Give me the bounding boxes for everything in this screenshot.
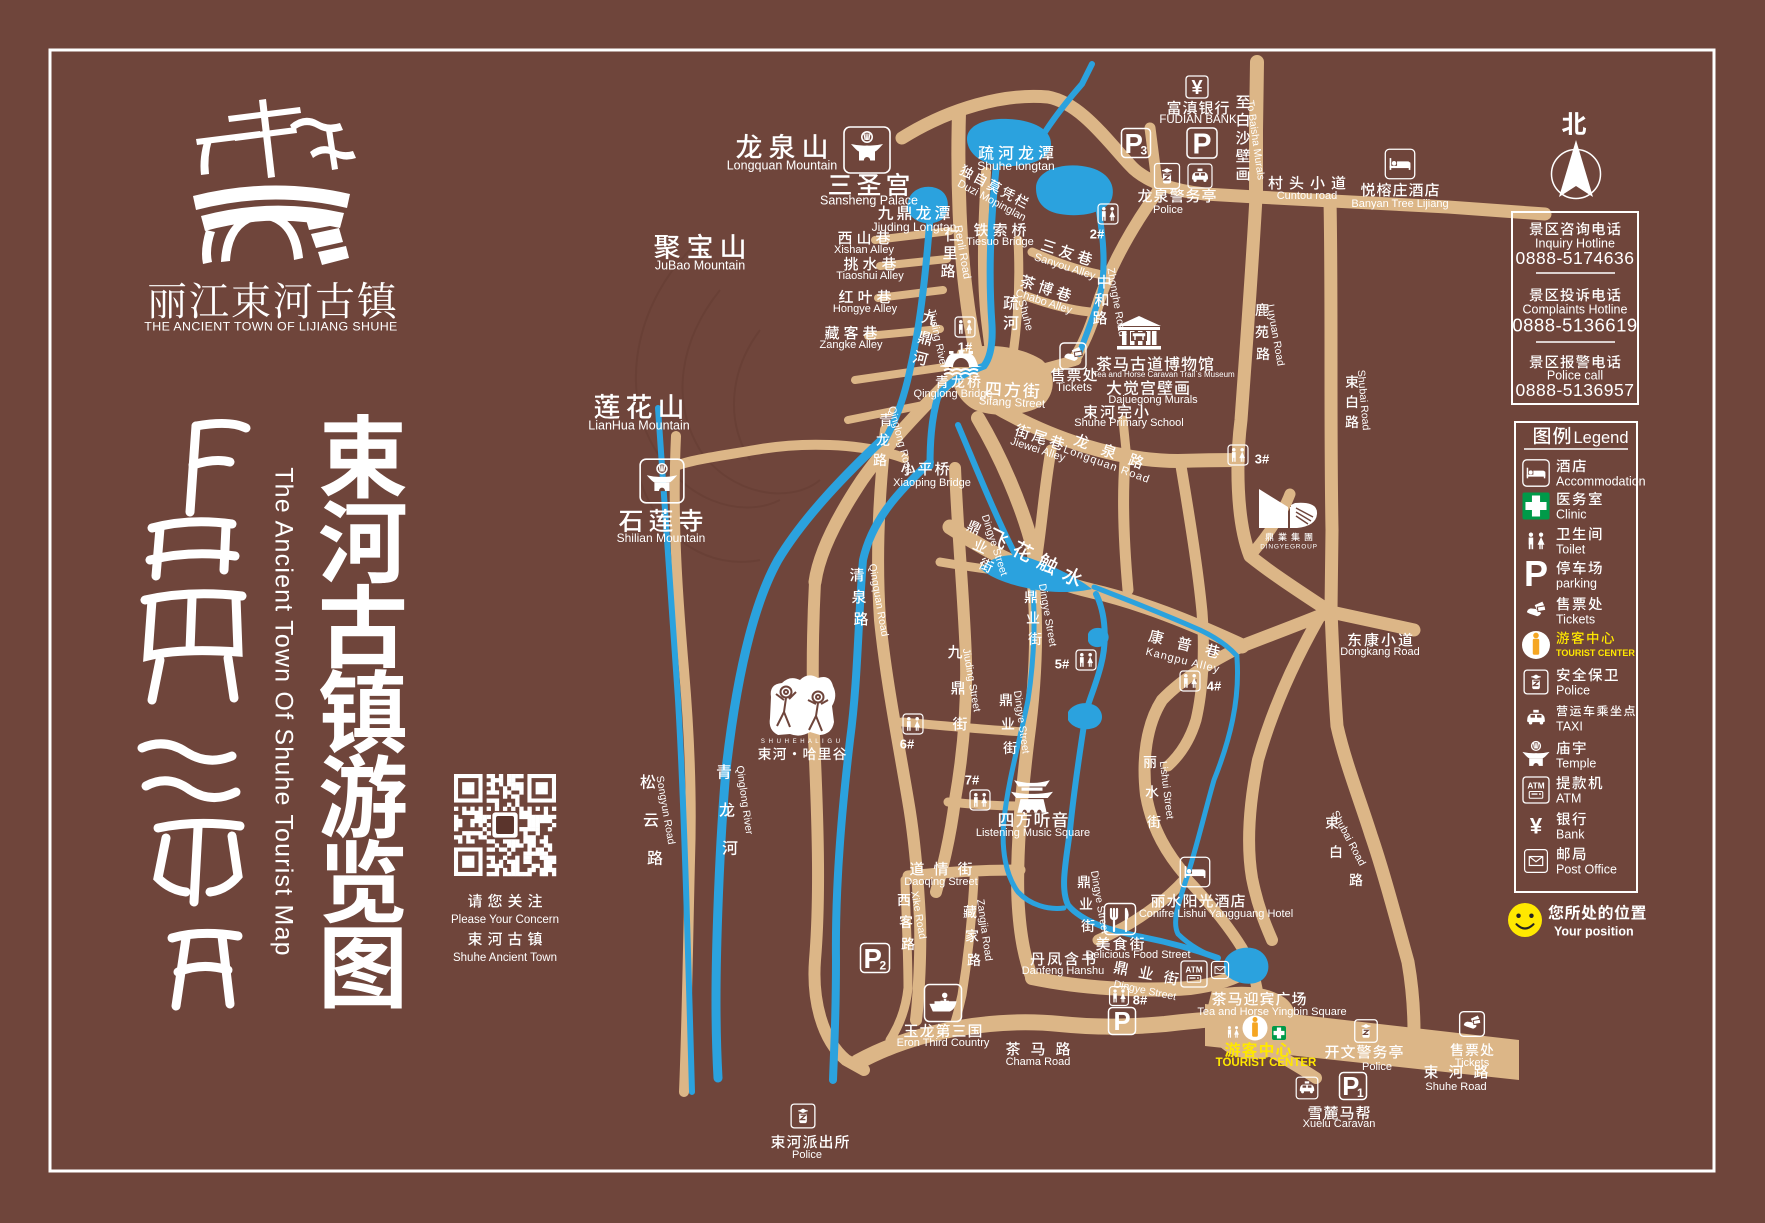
svg-text:7#: 7# — [965, 773, 980, 788]
svg-text:TAXI: TAXI — [1556, 719, 1583, 733]
svg-text:Please Your Concern: Please Your Concern — [451, 914, 559, 926]
svg-text:ATM: ATM — [1185, 966, 1202, 975]
svg-text:S H U H E H A L I G U: S H U H E H A L I G U — [761, 739, 841, 745]
svg-text:3#: 3# — [1255, 452, 1270, 467]
svg-text:Zangke Alley: Zangke Alley — [820, 339, 883, 351]
svg-text:Tickets: Tickets — [1556, 612, 1595, 626]
svg-text:6#: 6# — [900, 737, 915, 752]
svg-text:Listening Music Square: Listening Music Square — [976, 827, 1090, 839]
svg-text:1#: 1# — [958, 340, 973, 355]
svg-text:5#: 5# — [1055, 657, 1070, 672]
svg-text:Shilian Mountain: Shilian Mountain — [617, 531, 706, 545]
svg-text:Accommodation: Accommodation — [1556, 474, 1646, 488]
svg-text:Bank: Bank — [1556, 827, 1585, 841]
svg-text:Tea and Horse Caravan Trail`s: Tea and Horse Caravan Trail`s Museum — [1093, 370, 1235, 379]
svg-text:Shuhe longtan: Shuhe longtan — [977, 159, 1054, 173]
svg-text:Clinic: Clinic — [1556, 507, 1587, 521]
svg-text:Tea and Horse Yingbin Square: Tea and Horse Yingbin Square — [1197, 1006, 1346, 1018]
svg-text:P: P — [1524, 553, 1548, 594]
svg-text:Police: Police — [792, 1149, 822, 1161]
svg-text:Tiaoshui Alley: Tiaoshui Alley — [836, 270, 904, 282]
svg-text:Tiesuo Bridge: Tiesuo Bridge — [966, 236, 1033, 248]
svg-text:Shuhe Ancient Town: Shuhe Ancient Town — [453, 952, 557, 964]
svg-text:Daoqing Street: Daoqing Street — [904, 876, 977, 888]
svg-text:Cuntou road: Cuntou road — [1277, 190, 1338, 202]
svg-text:Shuhe Primary School: Shuhe Primary School — [1074, 417, 1183, 429]
svg-text:¥: ¥ — [1530, 814, 1543, 839]
svg-text:ATM: ATM — [1527, 782, 1544, 791]
svg-text:JuBao Mountain: JuBao Mountain — [655, 258, 745, 272]
svg-text:ATM: ATM — [1556, 791, 1581, 805]
svg-text:TOURIST CENTER: TOURIST CENTER — [1216, 1057, 1317, 1069]
svg-text:TOURIST CENTER: TOURIST CENTER — [1556, 648, 1635, 658]
svg-text:Tickets: Tickets — [1056, 382, 1092, 394]
svg-text:FUDIAN BANK: FUDIAN BANK — [1159, 114, 1237, 126]
svg-text:Xuelu Caravan: Xuelu Caravan — [1303, 1118, 1376, 1130]
svg-text:LianHua Mountain: LianHua Mountain — [588, 418, 690, 432]
svg-text:Police: Police — [1556, 683, 1590, 697]
svg-text:Delicious Food Street: Delicious Food Street — [1085, 949, 1190, 961]
svg-text:Police: Police — [1362, 1061, 1392, 1073]
svg-text:Temple: Temple — [1556, 756, 1596, 770]
svg-text:Conifre Lishui Yangguang Hotel: Conifre Lishui Yangguang Hotel — [1139, 908, 1293, 920]
svg-text:2: 2 — [879, 959, 886, 973]
svg-text:Danfeng Hanshu: Danfeng Hanshu — [1022, 965, 1105, 977]
svg-text:3: 3 — [1140, 144, 1147, 158]
svg-text:0888-5136957: 0888-5136957 — [1516, 380, 1635, 400]
svg-text:THE ANCIENT TOWN OF LIJIAN: THE ANCIENT TOWN OF LIJIANG SHUHE — [144, 319, 397, 333]
svg-text:4#: 4# — [1207, 679, 1222, 694]
svg-text:Jiuding Longtan: Jiuding Longtan — [872, 220, 957, 234]
svg-text:Dongkang Road: Dongkang Road — [1340, 646, 1420, 658]
svg-text:Tickets: Tickets — [1455, 1057, 1490, 1069]
svg-text:Banyan Tree Lijiang: Banyan Tree Lijiang — [1351, 198, 1448, 210]
svg-text:Eron Third Country: Eron Third Country — [897, 1037, 990, 1049]
svg-text:Toilet: Toilet — [1556, 542, 1586, 556]
svg-text:Dajuegong Murals: Dajuegong Murals — [1108, 394, 1198, 406]
svg-text:P: P — [1192, 128, 1211, 160]
svg-text:P: P — [1113, 1008, 1130, 1036]
svg-text:0888-5136619: 0888-5136619 — [1512, 314, 1637, 335]
svg-text:Police: Police — [1153, 204, 1183, 216]
svg-text:The Ancient Town Of Shuhe: The Ancient Town Of Shuhe Tourist Map — [269, 467, 297, 957]
svg-text:1: 1 — [1357, 1086, 1364, 1100]
svg-text:Xishan Alley: Xishan Alley — [834, 244, 894, 256]
svg-text:Sansheng Palace: Sansheng Palace — [820, 193, 918, 207]
svg-text:Longquan Mountain: Longquan Mountain — [727, 158, 838, 172]
svg-text:parking: parking — [1556, 576, 1597, 590]
svg-text:2#: 2# — [1090, 227, 1105, 242]
svg-text:DINGYEGROUP: DINGYEGROUP — [1260, 543, 1318, 550]
svg-text:Your position: Your position — [1554, 924, 1634, 938]
svg-text:0888-5174636: 0888-5174636 — [1516, 248, 1635, 268]
svg-text:Chama Road: Chama Road — [1006, 1056, 1071, 1068]
svg-text:Post Office: Post Office — [1556, 862, 1617, 876]
svg-text:Shuhe Road: Shuhe Road — [1425, 1081, 1486, 1093]
svg-text:Legend: Legend — [1573, 429, 1628, 447]
svg-text:Xiaoping Bridge: Xiaoping Bridge — [893, 477, 971, 489]
svg-text:Hongye Alley: Hongye Alley — [833, 303, 898, 315]
svg-text:¥: ¥ — [1191, 77, 1203, 99]
